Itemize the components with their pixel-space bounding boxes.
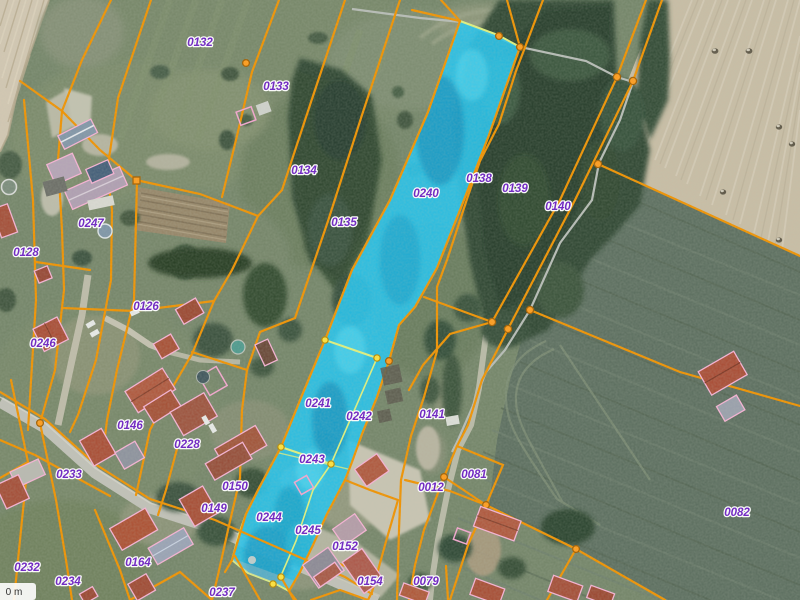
svg-text:0 m: 0 m [6,587,23,598]
